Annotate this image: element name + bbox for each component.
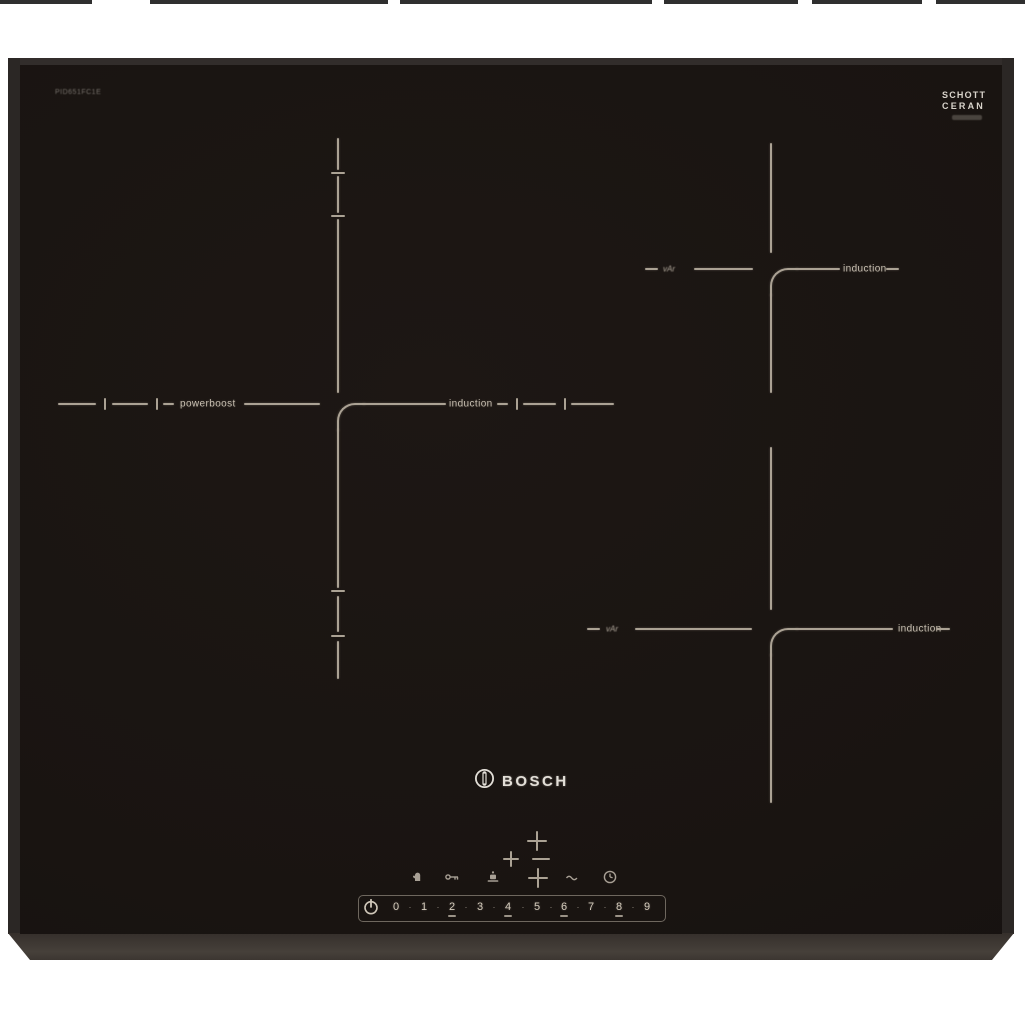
zone-select-top-right-button[interactable]: [527, 831, 547, 851]
digit-9[interactable]: 9: [644, 901, 650, 913]
zone-marking-tick: [331, 590, 345, 592]
banner-dash: [664, 0, 798, 4]
banner-dash: [0, 0, 92, 4]
digit-separator: ·: [493, 902, 496, 912]
product-photo: PID651FC1E SCHOTT CERAN powerboost induc…: [0, 0, 1025, 1025]
digit-separator: ·: [632, 902, 635, 912]
digit-separator: ·: [522, 902, 525, 912]
zone-marking-line: [694, 268, 753, 270]
banner-dash: [936, 0, 1025, 4]
zone-marking-line: [337, 429, 339, 588]
zone-marking-line: [337, 176, 339, 213]
zone-marking-tick: [331, 215, 345, 217]
zone-marking-line: [523, 403, 556, 405]
hand-icon[interactable]: [409, 869, 425, 885]
zone-marking-tick: [331, 172, 345, 174]
schott-line1: SCHOTT: [942, 90, 986, 100]
zone-select-bottom-right-button[interactable]: [528, 868, 548, 888]
zone-marking-line: [244, 403, 320, 405]
zone-marking-line: [936, 628, 950, 630]
bosch-wordmark: BOSCH: [502, 773, 569, 790]
zone-marking-line: [645, 268, 658, 270]
digit-separator: ·: [550, 902, 553, 912]
zone-select-divider: [532, 858, 550, 860]
bosch-logo: BOSCH: [474, 768, 569, 794]
wave-icon[interactable]: [564, 869, 580, 885]
zone-marking-line: [635, 628, 752, 630]
zone-marking-line: [770, 654, 772, 803]
zone-marking-tick: [156, 398, 158, 410]
zone-marking-line: [363, 403, 446, 405]
zone-marking-tick: [516, 398, 518, 410]
banner-dash: [812, 0, 922, 4]
schott-sub-badge: [952, 115, 982, 120]
hob-frame-top: [8, 58, 1014, 65]
zone-select-left-button[interactable]: [503, 851, 519, 867]
hob-frame-right: [1002, 58, 1014, 934]
digit-underline-tick: [560, 915, 568, 917]
bosch-symbol-icon: [474, 768, 495, 794]
digit-6[interactable]: 6: [561, 901, 567, 913]
zone-marking-line: [770, 447, 772, 610]
digit-2[interactable]: 2: [449, 901, 455, 913]
digit-7[interactable]: 7: [588, 901, 594, 913]
power-on-off-icon[interactable]: [363, 898, 379, 916]
zone-marking-tick: [564, 398, 566, 410]
digit-separator: ·: [465, 902, 468, 912]
zone-marking-line: [58, 403, 96, 405]
digit-separator: ·: [604, 902, 607, 912]
zone-marking-line: [337, 641, 339, 679]
digit-separator: ·: [437, 902, 440, 912]
zone-marking-line: [770, 294, 772, 393]
digit-underline-tick: [504, 915, 512, 917]
digit-0[interactable]: 0: [393, 901, 399, 913]
induction-label-left-zone: induction: [449, 399, 493, 410]
digit-5[interactable]: 5: [534, 901, 540, 913]
ceramic-glass: [20, 65, 1002, 934]
zone-marking-line: [497, 403, 508, 405]
schott-line2: CERAN: [942, 101, 985, 111]
key-icon[interactable]: [444, 869, 460, 885]
zone-marking-line: [337, 596, 339, 632]
digit-1[interactable]: 1: [421, 901, 427, 913]
zone-marking-line: [886, 268, 899, 270]
digit-separator: ·: [577, 902, 580, 912]
digit-8[interactable]: 8: [616, 901, 622, 913]
powerboost-label: powerboost: [180, 399, 236, 410]
digit-underline-tick: [448, 915, 456, 917]
zone-marking-tick: [331, 635, 345, 637]
digit-separator: ·: [409, 902, 412, 912]
banner-dash: [400, 0, 652, 4]
hob-frame-left: [8, 58, 20, 934]
digit-underline-tick: [615, 915, 623, 917]
zone-marking-line: [163, 403, 174, 405]
digit-3[interactable]: 3: [477, 901, 483, 913]
zone-marking-line: [770, 143, 772, 253]
zone-marking-line: [337, 219, 339, 393]
zone-marking-line: [571, 403, 614, 405]
zone-marking-tick: [104, 398, 106, 410]
timer-clock-icon[interactable]: [602, 869, 618, 885]
hob-frame-bevel: [8, 933, 1014, 960]
zone-size-label: vAr: [606, 625, 618, 634]
schott-ceran-logo: SCHOTT CERAN: [942, 90, 986, 120]
zone-marking-line: [337, 138, 339, 170]
pan-pause-icon[interactable]: [485, 869, 501, 885]
zone-marking-line: [587, 628, 600, 630]
model-label: PID651FC1E: [55, 89, 101, 96]
digit-4[interactable]: 4: [505, 901, 511, 913]
zone-marking-line: [796, 268, 840, 270]
induction-label-top-right: induction: [843, 264, 887, 275]
banner-dash: [150, 0, 388, 4]
zone-marking-line: [796, 628, 893, 630]
zone-marking-line: [112, 403, 148, 405]
zone-size-label: vAr: [663, 265, 675, 274]
induction-hob: PID651FC1E SCHOTT CERAN powerboost induc…: [8, 58, 1014, 960]
